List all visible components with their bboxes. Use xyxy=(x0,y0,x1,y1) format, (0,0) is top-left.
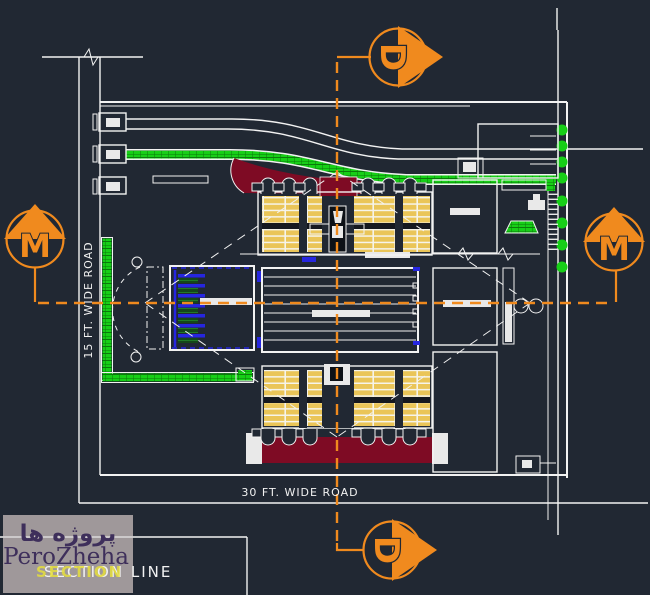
marker-letter: D xyxy=(372,43,412,71)
watermark-text-latin: PeroZheha xyxy=(3,544,129,570)
marker-letter: M xyxy=(19,227,51,265)
canvas-background xyxy=(0,0,650,595)
marker-letter: M xyxy=(598,230,630,268)
site-plan-drawing: D D M M 30 FT. WIDE ROAD 15 FT. WIDE ROA… xyxy=(0,0,650,595)
marker-letter: D xyxy=(366,536,406,564)
green-patch xyxy=(505,221,538,233)
cad-viewport: D D M M 30 FT. WIDE ROAD 15 FT. WIDE ROA… xyxy=(0,0,650,595)
green-symbol xyxy=(546,181,555,191)
road-label-bottom: 30 FT. WIDE ROAD xyxy=(241,486,358,499)
road-label-left: 15 FT. WIDE ROAD xyxy=(82,241,95,358)
stage-red-box xyxy=(320,177,357,199)
